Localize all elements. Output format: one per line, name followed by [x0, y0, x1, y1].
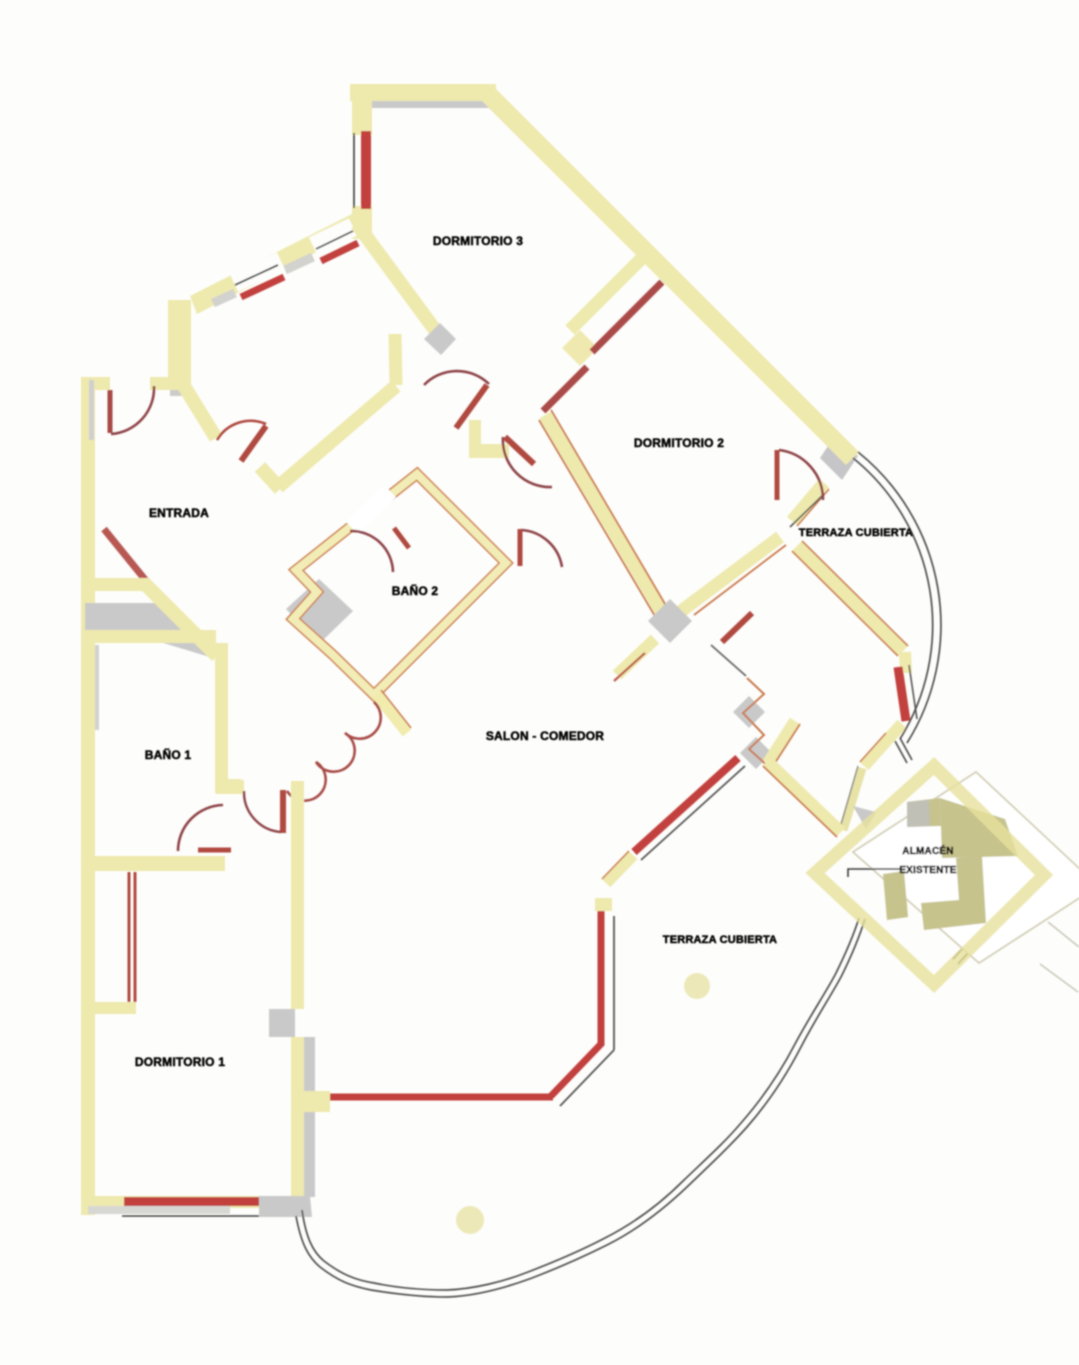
svg-text:SALON - COMEDOR: SALON - COMEDOR	[486, 729, 604, 743]
svg-text:EXISTENTE: EXISTENTE	[899, 865, 956, 876]
svg-text:ENTRADA: ENTRADA	[149, 506, 209, 520]
svg-text:ALMACÉN: ALMACÉN	[902, 844, 953, 857]
svg-text:TERRAZA CUBIERTA: TERRAZA CUBIERTA	[799, 527, 913, 539]
svg-text:DORMITORIO 1: DORMITORIO 1	[135, 1055, 225, 1069]
svg-text:DORMITORIO 3: DORMITORIO 3	[433, 234, 523, 248]
svg-text:BAÑO 1: BAÑO 1	[145, 747, 192, 762]
svg-text:TERRAZA CUBIERTA: TERRAZA CUBIERTA	[663, 934, 777, 946]
svg-text:BAÑO 2: BAÑO 2	[392, 583, 439, 598]
svg-text:DORMITORIO 2: DORMITORIO 2	[634, 436, 724, 450]
